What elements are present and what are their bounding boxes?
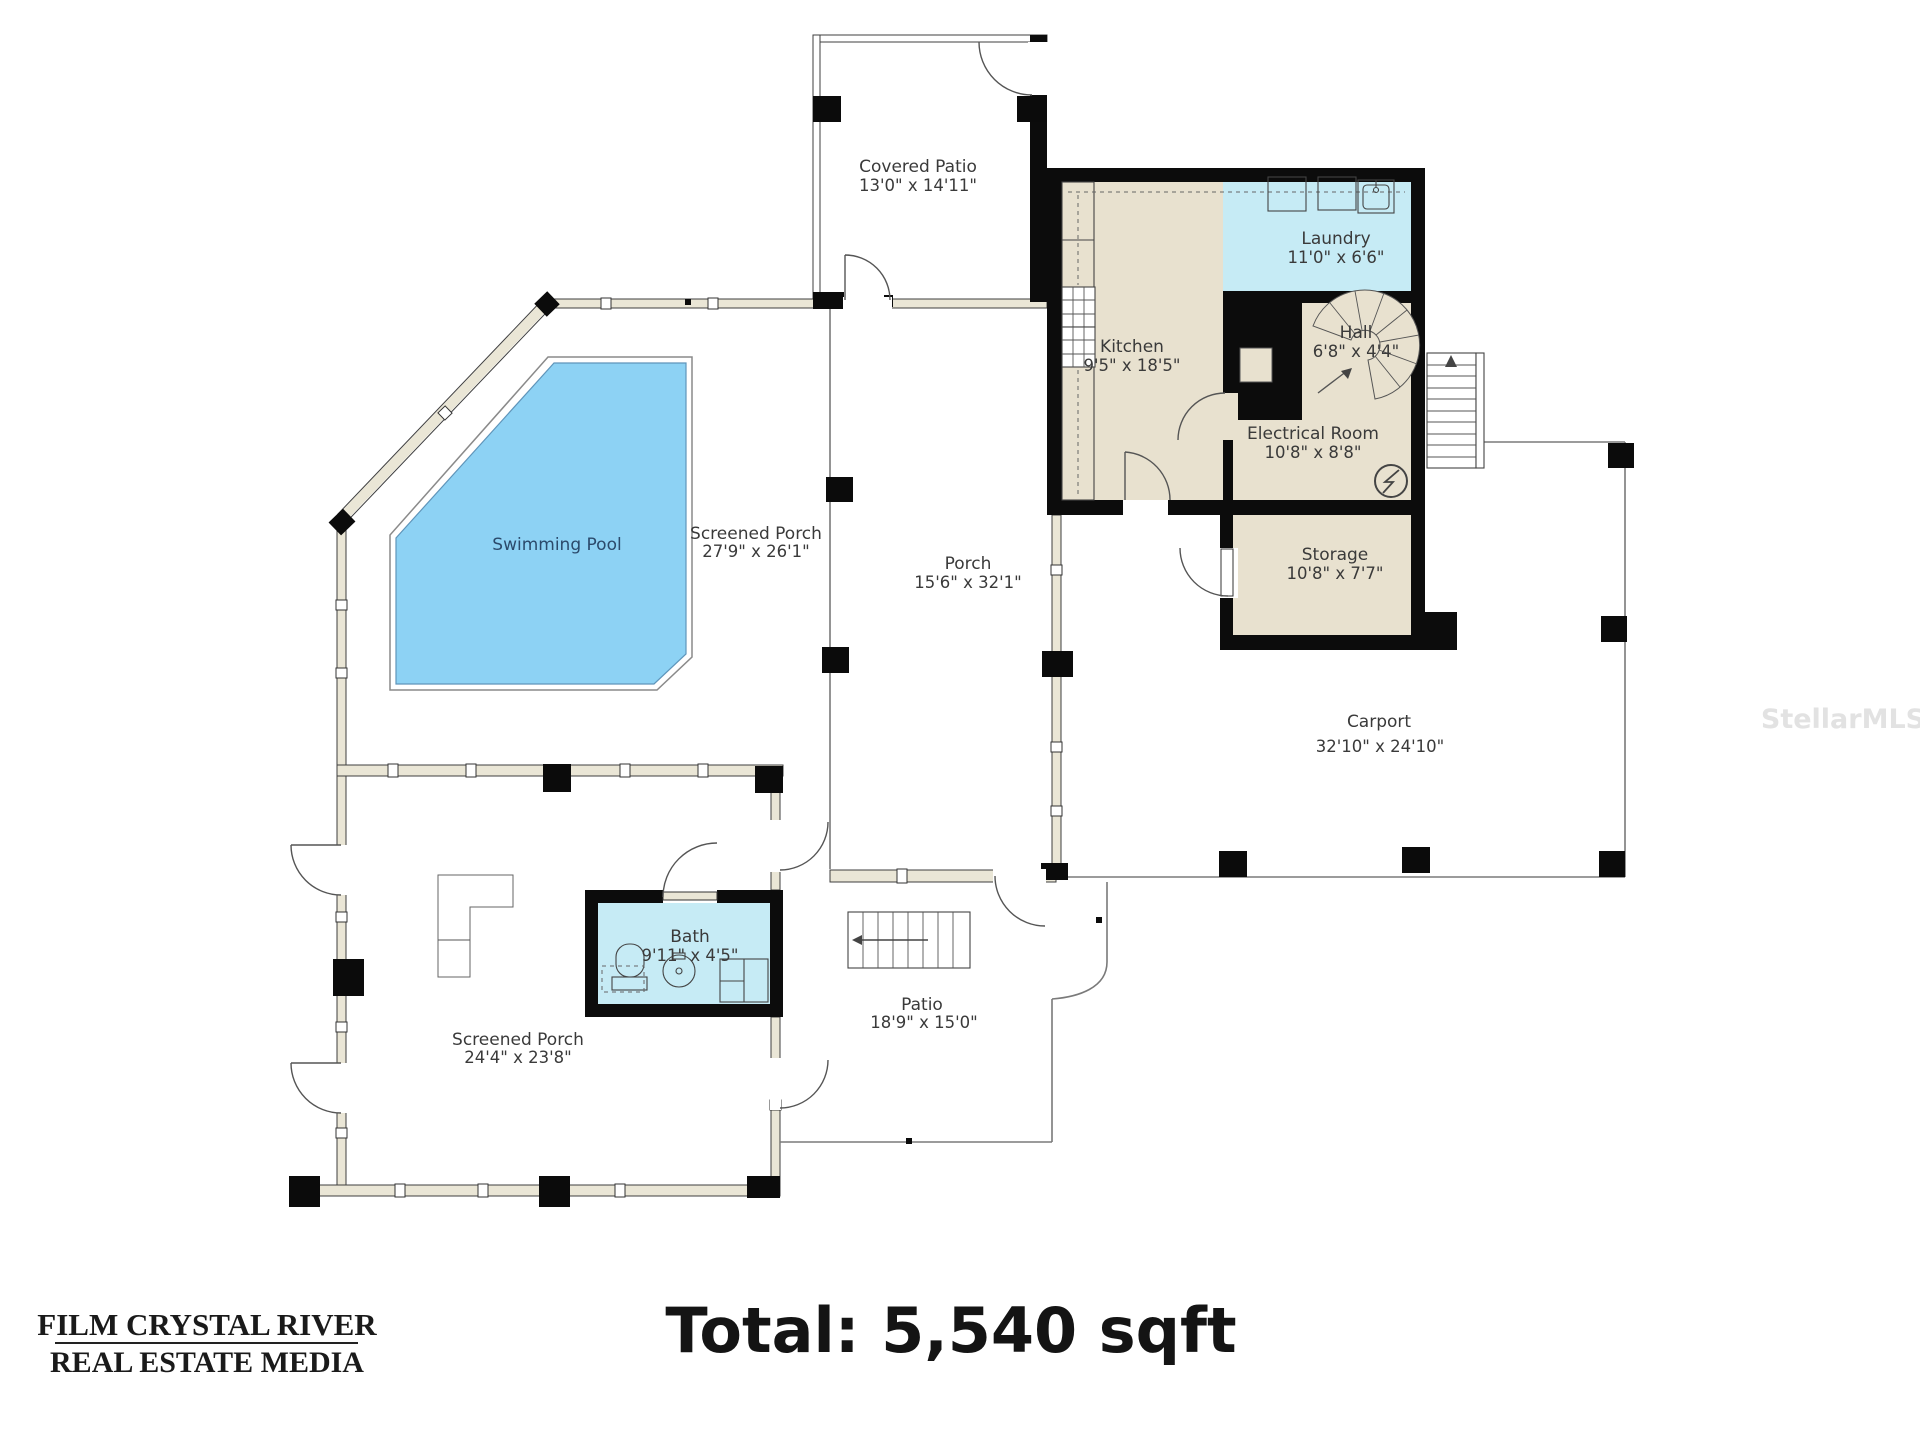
stellar-mls-watermark: StellarMLS <box>1761 704 1920 735</box>
swimming-pool <box>390 357 692 690</box>
total-sqft-text: Total: 5,540 sqft <box>665 1294 1236 1367</box>
porch-counter <box>438 875 513 977</box>
label-hall: Hall <box>1340 323 1373 343</box>
dims-kitchen: 9'5" x 18'5" <box>1084 356 1181 375</box>
bath-door <box>663 843 717 897</box>
floorplan-page: Covered Patio 13'0" x 14'11" Laundry 11'… <box>0 0 1920 1440</box>
covered-patio-entry-door <box>979 42 1032 95</box>
label-patio: Patio <box>901 995 943 1015</box>
dims-hall: 6'8" x 4'4" <box>1313 342 1400 361</box>
label-screened-porch-pool: Screened Porch <box>690 524 822 544</box>
dims-storage: 10'8" x 7'7" <box>1287 564 1384 583</box>
dims-laundry: 11'0" x 6'6" <box>1288 248 1385 267</box>
hall-niche <box>1240 348 1272 382</box>
porch-east-door-1 <box>780 822 828 870</box>
dims-screened-porch-lower: 24'4" x 23'8" <box>464 1048 572 1067</box>
dims-bath: 9'11" x 4'5" <box>642 946 739 965</box>
dims-electrical: 10'8" x 8'8" <box>1265 443 1362 462</box>
label-storage: Storage <box>1302 545 1369 565</box>
dims-porch: 15'6" x 32'1" <box>914 573 1022 592</box>
floorplan-drawing: Covered Patio 13'0" x 14'11" Laundry 11'… <box>0 0 1920 1440</box>
screen-wall-dividers <box>336 298 1062 1197</box>
label-screened-porch-lower: Screened Porch <box>452 1030 584 1050</box>
logo-line-2: REAL ESTATE MEDIA <box>50 1346 364 1379</box>
porch-patio-door <box>995 876 1045 926</box>
porch-east-door-2 <box>780 1060 828 1108</box>
label-laundry: Laundry <box>1301 229 1370 249</box>
logo-line-1: FILM CRYSTAL RIVER <box>37 1307 377 1342</box>
dims-screened-porch-pool: 27'9" x 26'1" <box>702 542 810 561</box>
label-kitchen: Kitchen <box>1100 337 1164 357</box>
label-bath: Bath <box>670 927 710 947</box>
electrical-symbol-icon <box>1375 465 1407 497</box>
exterior-stairs-icon <box>1427 353 1484 468</box>
label-porch: Porch <box>945 554 992 574</box>
dims-covered-patio: 13'0" x 14'11" <box>859 176 977 195</box>
patio-stairs-icon <box>848 912 970 968</box>
label-carport: Carport <box>1347 712 1411 732</box>
footer: Total: 5,540 sqft FILM CRYSTAL RIVER REA… <box>37 1294 1236 1379</box>
west-exterior-door-2 <box>291 1063 341 1113</box>
dims-patio: 18'9" x 15'0" <box>870 1013 978 1032</box>
dims-carport: 32'10" x 24'10" <box>1316 737 1445 756</box>
label-covered-patio: Covered Patio <box>859 157 977 177</box>
label-electrical: Electrical Room <box>1247 424 1379 444</box>
covered-patio-porch-door <box>845 255 890 300</box>
west-exterior-door-1 <box>291 845 341 895</box>
label-swimming-pool: Swimming Pool <box>492 535 621 555</box>
